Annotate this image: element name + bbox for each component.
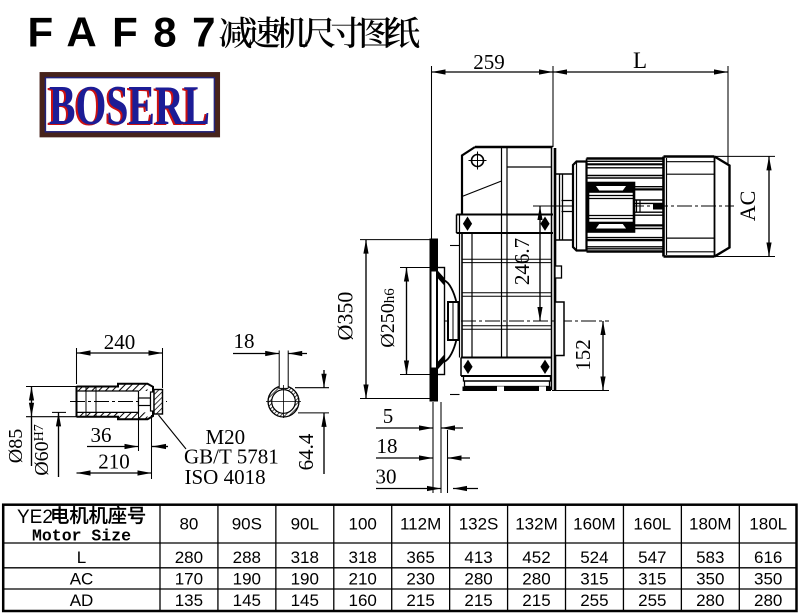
- svg-text:18: 18: [377, 434, 398, 458]
- svg-text:180M: 180M: [689, 515, 732, 534]
- svg-text:280: 280: [754, 591, 782, 610]
- svg-text:255: 255: [638, 591, 666, 610]
- svg-text:145: 145: [291, 591, 319, 610]
- svg-text:365: 365: [406, 548, 434, 567]
- svg-text:524: 524: [580, 548, 608, 567]
- svg-text:255: 255: [580, 591, 608, 610]
- svg-text:547: 547: [638, 548, 666, 567]
- svg-text:30: 30: [376, 465, 397, 489]
- svg-text:315: 315: [580, 570, 608, 589]
- svg-text:280: 280: [696, 591, 724, 610]
- svg-text:315: 315: [638, 570, 666, 589]
- svg-text:288: 288: [233, 548, 261, 567]
- svg-text:583: 583: [696, 548, 724, 567]
- svg-text:318: 318: [349, 548, 377, 567]
- svg-text:215: 215: [522, 591, 550, 610]
- svg-text:80: 80: [179, 515, 198, 534]
- svg-text:210: 210: [98, 450, 130, 474]
- svg-text:215: 215: [464, 591, 492, 610]
- svg-text:100: 100: [349, 515, 377, 534]
- svg-text:132S: 132S: [459, 515, 499, 534]
- svg-text:L: L: [633, 48, 647, 73]
- svg-text:160L: 160L: [633, 515, 671, 534]
- svg-text:350: 350: [754, 570, 782, 589]
- svg-text:18: 18: [234, 329, 255, 353]
- svg-text:Ø350: Ø350: [333, 292, 358, 341]
- svg-text:ISO 4018: ISO 4018: [185, 465, 266, 489]
- svg-text:190: 190: [291, 570, 319, 589]
- svg-text:90L: 90L: [291, 515, 319, 534]
- svg-text:YE2: YE2: [17, 507, 53, 528]
- svg-text:AD: AD: [70, 591, 94, 610]
- svg-text:Ø85: Ø85: [5, 429, 27, 463]
- svg-text:280: 280: [464, 570, 492, 589]
- svg-text:318: 318: [291, 548, 319, 567]
- svg-text:230: 230: [406, 570, 434, 589]
- svg-text:215: 215: [406, 591, 434, 610]
- svg-text:152: 152: [571, 339, 595, 371]
- svg-text:190: 190: [233, 570, 261, 589]
- svg-text:AC: AC: [70, 570, 94, 589]
- svg-text:135: 135: [175, 591, 203, 610]
- svg-text:36: 36: [91, 423, 112, 447]
- svg-text:280: 280: [522, 570, 550, 589]
- svg-text:350: 350: [696, 570, 724, 589]
- svg-text:Motor Size: Motor Size: [32, 527, 131, 546]
- svg-text:5: 5: [383, 404, 394, 428]
- svg-text:160: 160: [349, 591, 377, 610]
- svg-text:145: 145: [233, 591, 261, 610]
- svg-text:259: 259: [473, 50, 505, 74]
- svg-text:L: L: [77, 548, 86, 567]
- svg-text:90S: 90S: [232, 515, 262, 534]
- svg-text:170: 170: [175, 570, 203, 589]
- svg-text:452: 452: [522, 548, 550, 567]
- svg-text:BOSERL: BOSERL: [49, 75, 210, 137]
- svg-text:180L: 180L: [749, 515, 787, 534]
- svg-text:64.4: 64.4: [294, 433, 318, 470]
- svg-text:413: 413: [464, 548, 492, 567]
- svg-text:112M: 112M: [400, 515, 441, 534]
- svg-text:AC: AC: [735, 191, 760, 222]
- svg-text:210: 210: [349, 570, 377, 589]
- svg-text:246.7: 246.7: [510, 238, 534, 285]
- svg-text:616: 616: [754, 548, 782, 567]
- svg-text:280: 280: [175, 548, 203, 567]
- svg-text:160M: 160M: [573, 515, 616, 534]
- svg-text:240: 240: [104, 330, 136, 354]
- svg-text:132M: 132M: [515, 515, 558, 534]
